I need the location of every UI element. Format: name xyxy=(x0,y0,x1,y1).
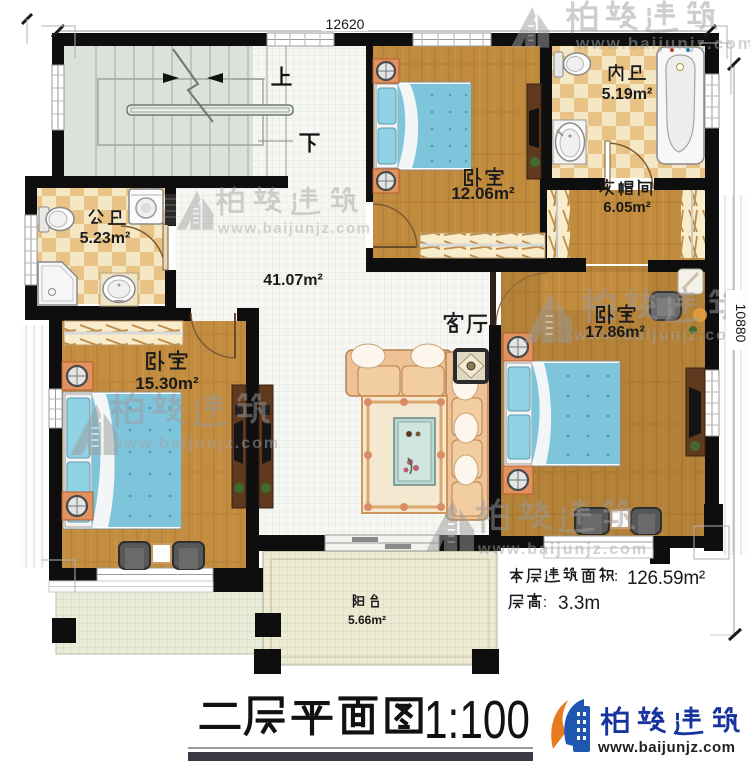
svg-text:12.06m²: 12.06m² xyxy=(451,184,515,203)
svg-text:5.66m²: 5.66m² xyxy=(348,613,386,627)
svg-text:15.30m²: 15.30m² xyxy=(135,374,199,393)
svg-text:126.59m²: 126.59m² xyxy=(627,568,705,589)
svg-text:1:100: 1:100 xyxy=(424,690,530,750)
svg-text:10880: 10880 xyxy=(733,304,749,343)
svg-text:www.baijunjz.com: www.baijunjz.com xyxy=(597,739,735,756)
svg-text:www.baijunjz.com: www.baijunjz.com xyxy=(109,435,280,452)
svg-text::: : xyxy=(543,594,547,611)
svg-text:www.baijunjz.com: www.baijunjz.com xyxy=(477,541,648,558)
svg-text:www.baijunjz.com: www.baijunjz.com xyxy=(217,220,371,237)
svg-text:6.05m²: 6.05m² xyxy=(603,199,651,216)
svg-text:17.86m²: 17.86m² xyxy=(585,324,645,341)
svg-text:5.23m²: 5.23m² xyxy=(80,230,131,247)
svg-text:12620: 12620 xyxy=(326,16,365,32)
svg-text:5.19m²: 5.19m² xyxy=(602,86,653,103)
svg-text:41.07m²: 41.07m² xyxy=(263,272,323,289)
svg-text::: : xyxy=(614,568,618,585)
svg-text:3.3m: 3.3m xyxy=(558,593,600,614)
